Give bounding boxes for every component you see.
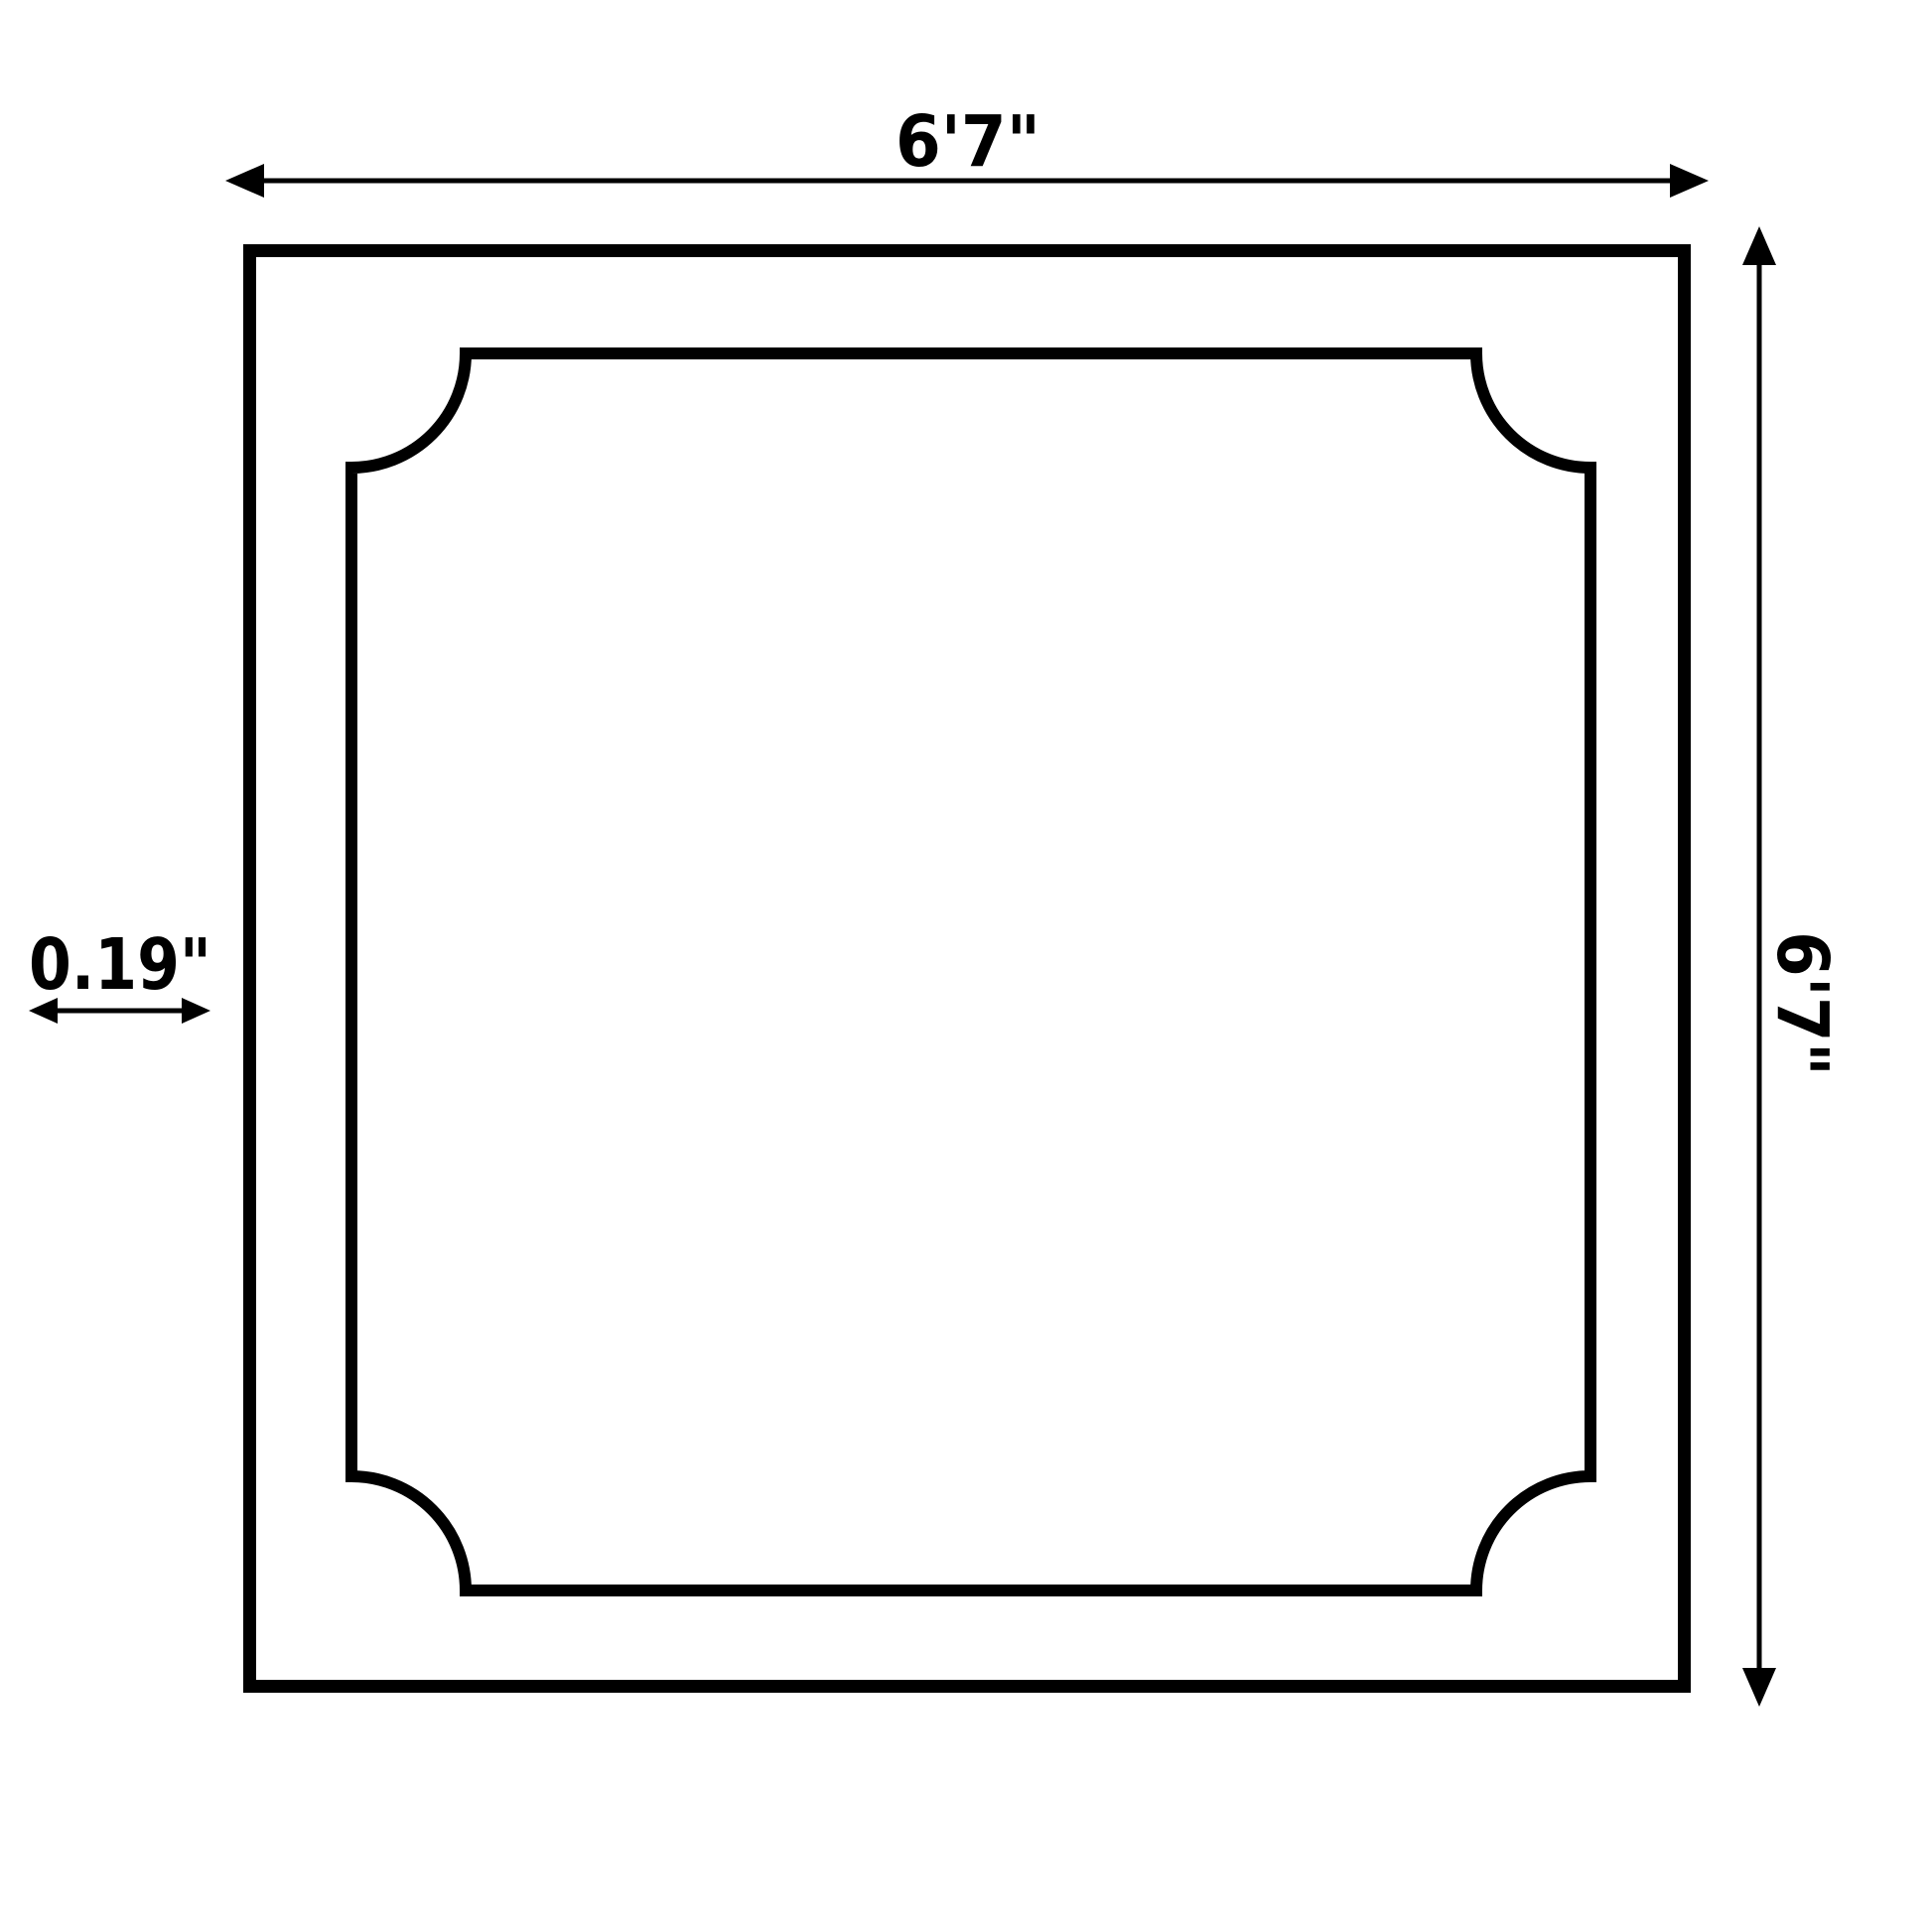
- inner-scalloped-outline: [351, 353, 1590, 1590]
- width-arrowhead-right-icon: [1670, 164, 1709, 198]
- height-dimension: 6'7": [1742, 226, 1844, 1707]
- thickness-dimension-label: 0.19": [29, 923, 211, 1006]
- width-dimension-label: 6'7": [896, 100, 1040, 183]
- height-arrowhead-top-icon: [1742, 226, 1776, 265]
- dimension-drawing: 6'7" 6'7" 0.19": [0, 0, 1932, 1932]
- width-dimension: 6'7": [225, 100, 1709, 198]
- thickness-dimension: 0.19": [29, 923, 211, 1024]
- drawing-canvas: 6'7" 6'7" 0.19": [0, 0, 1932, 1932]
- height-dimension-label: 6'7": [1761, 931, 1844, 1076]
- width-arrowhead-left-icon: [225, 164, 264, 198]
- outer-square-outline: [250, 251, 1685, 1687]
- height-arrowhead-bottom-icon: [1742, 1668, 1776, 1707]
